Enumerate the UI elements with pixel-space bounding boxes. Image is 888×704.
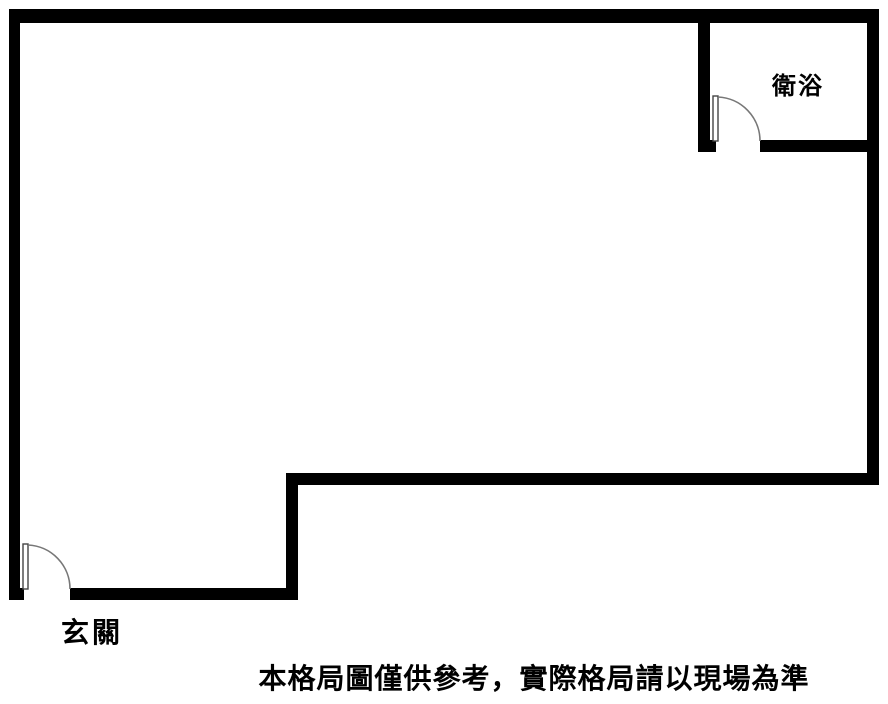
entrance-door-swing-arc-icon <box>28 545 70 589</box>
wall-bottom-right <box>286 473 879 485</box>
bathroom-door-leaf-icon <box>713 96 718 141</box>
floor-plan: 衛浴 玄關 本格局圖僅供參考，實際格局請以現場為準 <box>0 0 888 704</box>
wall-bathroom-bottom <box>760 140 867 152</box>
entrance-label: 玄關 <box>61 616 123 648</box>
wall-bottom-left <box>70 588 298 600</box>
bathroom-door-swing-arc-icon <box>718 97 760 141</box>
bathroom-label: 衛浴 <box>771 72 824 100</box>
wall-top <box>9 9 879 23</box>
wall-left <box>9 9 20 600</box>
disclaimer-text: 本格局圖僅供參考，實際格局請以現場為準 <box>258 662 809 694</box>
entrance-door-leaf-icon <box>23 544 28 589</box>
wall-bathroom-bottom-stub <box>698 140 716 152</box>
wall-bottom-left-stub <box>9 588 24 600</box>
wall-bathroom-left <box>698 9 710 152</box>
floor-plan-drawing: 衛浴 玄關 本格局圖僅供參考，實際格局請以現場為準 <box>0 0 888 704</box>
wall-right <box>867 9 879 485</box>
wall-step-vertical <box>286 473 298 600</box>
